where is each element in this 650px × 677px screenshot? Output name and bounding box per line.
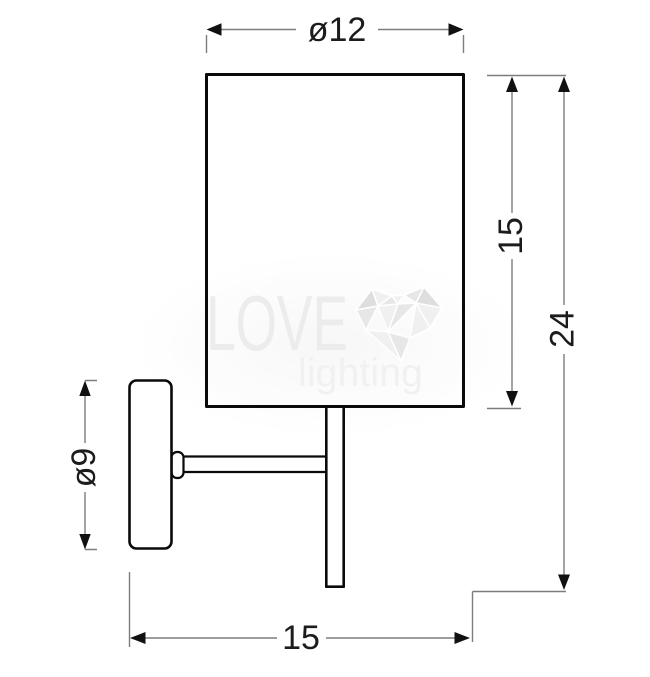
dim-label-total-width: 15	[282, 619, 320, 657]
wall-mount-plate	[130, 381, 172, 549]
lamp-stem	[326, 407, 343, 587]
watermark-lighting-text: lighting	[298, 351, 423, 395]
arm-joint	[172, 452, 184, 478]
dim-label-shade-diameter: ø12	[308, 11, 367, 49]
dim-label-plate-diameter: ø9	[65, 448, 103, 488]
dim-label-shade-height: 15	[492, 217, 530, 255]
dim-label-total-height: 24	[544, 310, 582, 348]
technical-drawing: LOVE lighting	[0, 0, 650, 677]
